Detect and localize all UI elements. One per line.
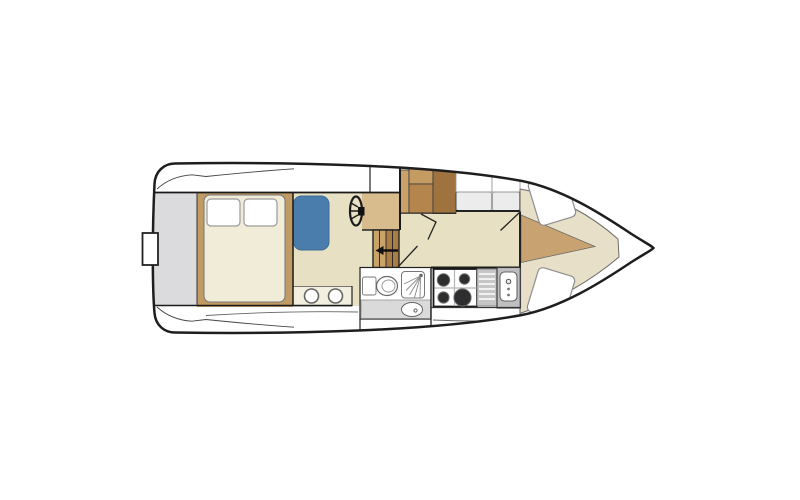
aft-cabin bbox=[197, 193, 293, 308]
boat-floor-plan-image bbox=[0, 0, 800, 500]
vanity-sink-left bbox=[305, 289, 319, 303]
galley-sink bbox=[497, 268, 521, 309]
pillow-right bbox=[244, 199, 277, 226]
companionway-steps bbox=[373, 230, 399, 268]
pillow-left bbox=[207, 199, 240, 226]
cabinet-mid-lower bbox=[409, 184, 433, 213]
burner bbox=[437, 274, 449, 286]
seat-cushion-right bbox=[493, 192, 520, 211]
burner bbox=[438, 292, 449, 303]
helm-console bbox=[362, 193, 400, 231]
wardrobe bbox=[433, 168, 456, 214]
drainboard bbox=[477, 269, 497, 306]
galley-floor bbox=[398, 211, 520, 268]
wheel-hub bbox=[358, 207, 365, 216]
shower bbox=[402, 272, 425, 299]
seat-back-right bbox=[492, 171, 520, 192]
vanity-counter bbox=[293, 286, 352, 306]
vanity-sink-right bbox=[329, 289, 343, 303]
boat-floor-plan bbox=[0, 0, 800, 500]
galley bbox=[431, 268, 521, 309]
storage-cabinets bbox=[400, 168, 456, 214]
stove bbox=[434, 269, 478, 307]
salon-floor-strip bbox=[352, 286, 360, 306]
washbasin bbox=[402, 303, 423, 317]
cabinet-shelf bbox=[400, 170, 409, 213]
dinette-seating bbox=[456, 171, 520, 211]
seat-cushion-left bbox=[457, 192, 492, 211]
toilet bbox=[377, 277, 398, 296]
toilet-tank bbox=[363, 277, 377, 295]
burner bbox=[454, 289, 471, 306]
burner bbox=[459, 274, 469, 284]
transom-gate bbox=[143, 233, 159, 265]
side-berth-blue bbox=[294, 196, 330, 250]
faucet bbox=[506, 279, 511, 284]
